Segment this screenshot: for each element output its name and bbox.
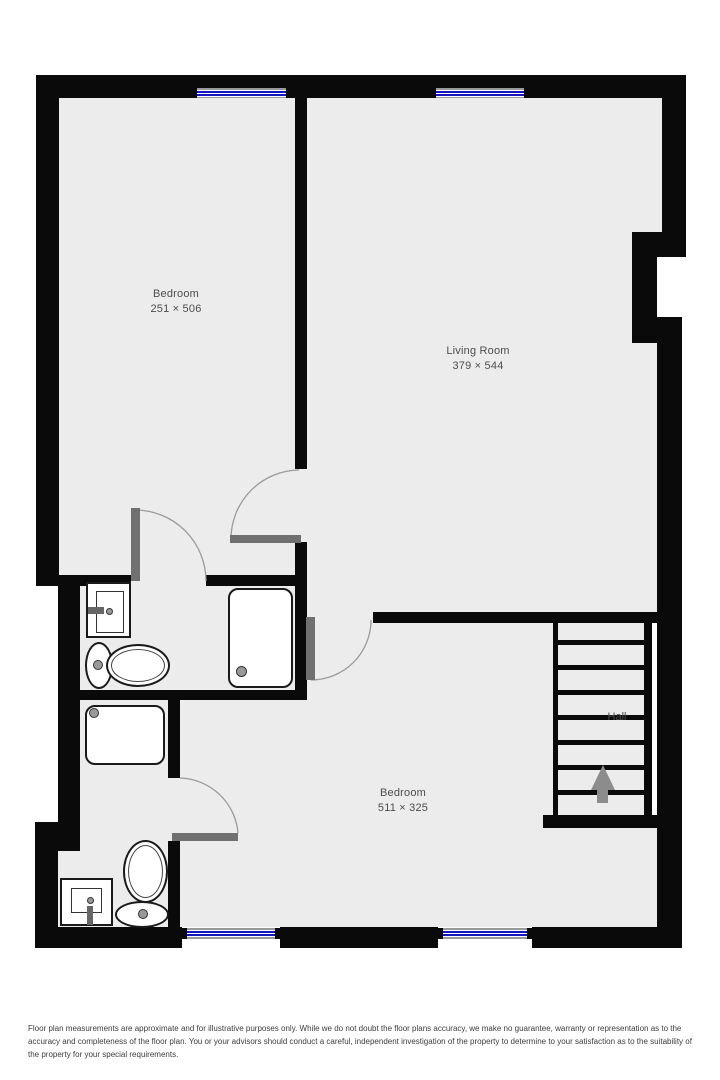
wall-left-middle: [58, 578, 80, 827]
wall-partition-bedroom1-living-upper: [295, 98, 307, 469]
toilet-bowl-inner-line: [128, 845, 163, 898]
toilet-bowl-bathroom-1: [106, 644, 170, 687]
room-label-hall: Hall: [587, 711, 647, 723]
window-top-1-cap-left: [193, 88, 197, 98]
wall-stairs-top: [553, 612, 657, 623]
floor-bedroom-1: [59, 98, 295, 586]
room-label-living-room: Living Room 379 × 544: [398, 344, 558, 373]
window-bottom-2-sill-outer: [438, 928, 532, 930]
toilet-bowl-inner-line: [111, 649, 165, 682]
wall-chimney-step-top: [632, 232, 686, 257]
room-label-bedroom-2: Bedroom 511 × 325: [323, 786, 483, 815]
window-bottom-1-cap-left: [182, 928, 187, 939]
toilet-flush-bathroom-2: [138, 909, 148, 919]
window-bottom-2-cap-right: [527, 928, 532, 939]
stair-tread: [558, 665, 644, 670]
wall-right-lower: [657, 343, 682, 927]
wall-left-jog: [35, 822, 80, 851]
window-top-2-sill-outer: [432, 88, 528, 90]
window-bottom-1-sill-outer: [182, 928, 280, 930]
faucet-knob-bathroom-1: [106, 608, 113, 615]
faucet-bathroom-2: [87, 906, 93, 925]
wall-bottom-left: [35, 927, 182, 948]
window-bottom-1-cap-right: [275, 928, 280, 939]
window-top-1-pane: [197, 91, 286, 93]
wall-bathroom2-right-upper: [168, 700, 180, 778]
door-leaf-bedroom-1: [230, 535, 301, 543]
faucet-bathroom-1: [88, 607, 104, 614]
wall-right-upper: [662, 98, 686, 232]
window-top-1-cap-right: [286, 88, 290, 98]
wall-above-window-top-1: [193, 75, 290, 88]
wall-stairs-bottom: [543, 815, 660, 828]
window-bottom-2-pane: [443, 934, 527, 936]
floor-opening-bedroom-1-door: [295, 469, 307, 542]
door-leaf-bedroom-2: [306, 617, 315, 680]
floor-plan: Bedroom 251 × 506 Living Room 379 × 544 …: [0, 0, 720, 1080]
window-bottom-2-sill-inner: [438, 937, 532, 939]
window-top-1-sill-inner: [193, 97, 290, 99]
wall-left-upper: [36, 98, 59, 578]
floor-opening-bedroom-2-door: [307, 612, 373, 623]
window-top-2-cap-left: [432, 88, 436, 98]
floor-opening-bathroom-2-door: [168, 778, 180, 841]
door-leaf-bathroom-1: [131, 508, 140, 581]
window-bottom-2-cap-left: [438, 928, 443, 939]
room-dimensions: 251 × 506: [96, 302, 256, 317]
faucet-knob-bathroom-2: [87, 897, 94, 904]
stair-tread: [558, 690, 644, 695]
window-top-2-cap-right: [524, 88, 528, 98]
window-bottom-2-pane: [443, 931, 527, 933]
stairs-up-arrow-icon: [591, 765, 615, 790]
window-top-2-pane: [436, 94, 524, 96]
wall-chimney-step-bottom: [632, 317, 682, 343]
stairs-up-arrow-stem: [597, 789, 608, 803]
window-bottom-1-pane: [187, 931, 275, 933]
room-name: Hall: [608, 711, 627, 723]
disclaimer-text: Floor plan measurements are approximate …: [28, 1022, 696, 1061]
shower-drain-bathroom-1: [236, 666, 247, 677]
shower-drain-bathroom-2: [89, 708, 99, 718]
wall-bathroom1-bottom: [80, 690, 307, 700]
wall-top-middle: [290, 75, 432, 98]
toilet-flush-bathroom-1: [93, 660, 103, 670]
room-name: Living Room: [398, 344, 558, 359]
room-name: Bedroom: [96, 287, 256, 302]
window-top-2-pane: [436, 91, 524, 93]
wall-above-window-top-2: [432, 75, 528, 88]
wall-bedroom2-top: [373, 612, 553, 623]
stair-tread: [558, 640, 644, 645]
wall-bathroom2-right-lower: [168, 841, 180, 927]
window-bottom-1-pane: [187, 934, 275, 936]
wall-left-lower: [35, 851, 58, 927]
window-top-2-sill-inner: [432, 97, 528, 99]
room-dimensions: 379 × 544: [398, 359, 558, 374]
wall-chimney-side: [632, 257, 657, 317]
wall-bottom-middle: [280, 927, 438, 948]
window-bottom-1-sill-inner: [182, 937, 280, 939]
room-label-bedroom-1: Bedroom 251 × 506: [96, 287, 256, 316]
wall-bathroom1-top-right: [206, 575, 307, 586]
toilet-bowl-bathroom-2: [123, 840, 168, 903]
room-dimensions: 511 × 325: [323, 801, 483, 816]
stair-tread: [558, 740, 644, 745]
window-top-1-sill-outer: [193, 88, 290, 90]
room-name: Bedroom: [323, 786, 483, 801]
wall-top-right: [528, 75, 686, 98]
window-top-1-pane: [197, 94, 286, 96]
wall-bottom-right: [532, 927, 682, 948]
door-leaf-bathroom-2: [172, 833, 238, 841]
wall-top-left: [36, 75, 193, 98]
floor-opening-bathroom-1-door: [140, 575, 206, 586]
